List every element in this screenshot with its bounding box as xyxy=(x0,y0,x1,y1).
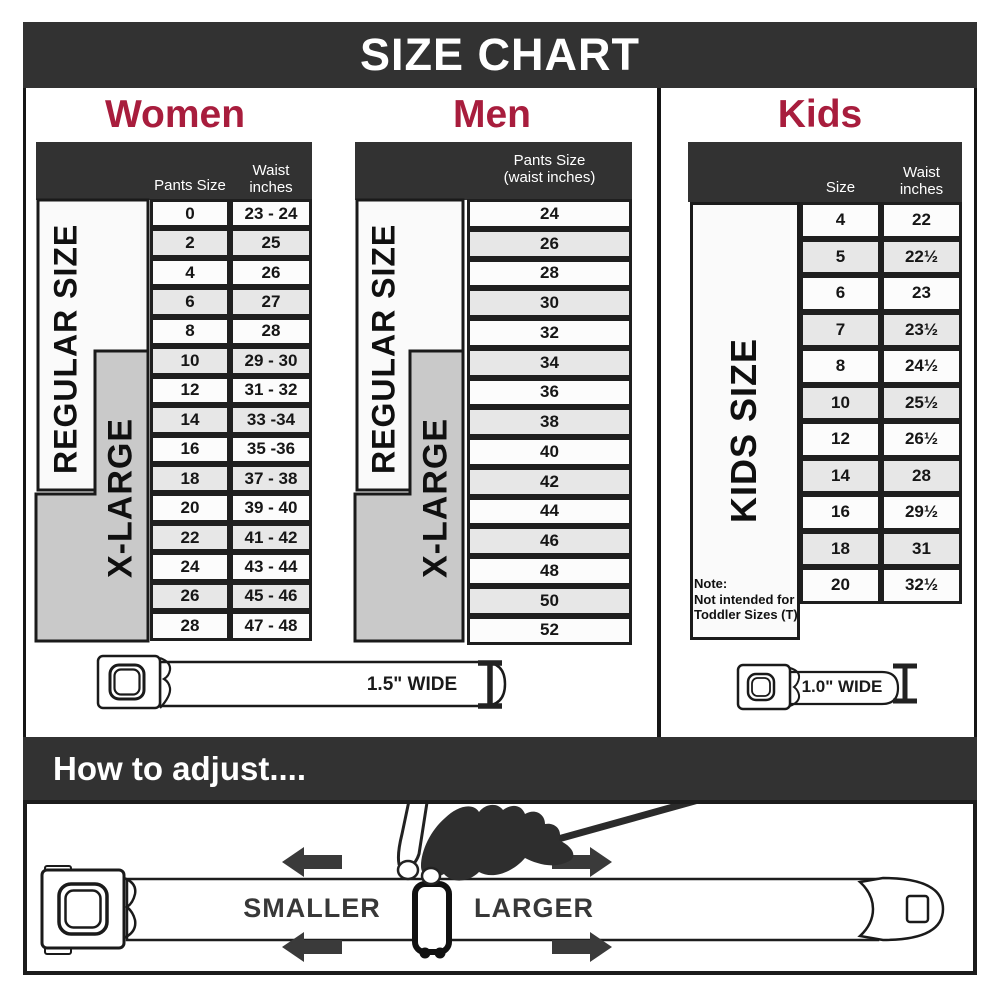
seatbelt-buckle-icon xyxy=(98,656,170,708)
table-cell: 32 xyxy=(467,318,632,348)
table-cell: 23 - 24 xyxy=(230,199,312,228)
women-size-table: 023 - 242254266278281029 - 301231 - 3214… xyxy=(150,199,312,641)
table-cell: 0 xyxy=(150,199,230,228)
table-cell: 52 xyxy=(467,616,632,646)
table-cell: 14 xyxy=(800,458,881,495)
men-size-table: 242628303234363840424446485052 xyxy=(467,199,632,645)
hand-icon xyxy=(398,804,573,884)
table-cell: 39 - 40 xyxy=(230,493,312,522)
table-cell: 29½ xyxy=(881,494,962,531)
belt-tongue-icon xyxy=(860,878,943,940)
kids-size-label: KIDS SIZE xyxy=(722,290,766,570)
table-cell: 31 xyxy=(881,531,962,568)
table-cell: 42 xyxy=(467,467,632,497)
kids-heading: Kids xyxy=(735,94,905,136)
men-xlarge-label: X-LARGE xyxy=(414,362,458,634)
table-cell: 43 - 44 xyxy=(230,552,312,581)
table-cell: 26 xyxy=(230,258,312,287)
table-cell: 30 xyxy=(467,288,632,318)
table-cell: 5 xyxy=(800,239,881,276)
table-cell: 25½ xyxy=(881,385,962,422)
table-cell: 27 xyxy=(230,287,312,316)
women-heading: Women xyxy=(90,94,260,136)
table-cell: 4 xyxy=(800,202,881,239)
table-cell: 23 xyxy=(881,275,962,312)
frame-right-border xyxy=(974,88,977,737)
seatbelt-buckle-icon xyxy=(42,866,135,954)
women-column-header-bar: Pants Size Waist inches xyxy=(36,142,312,200)
adult-belt-width-label: 1.5" WIDE xyxy=(352,674,472,696)
table-cell: 23½ xyxy=(881,312,962,349)
table-cell: 37 - 38 xyxy=(230,464,312,493)
table-cell: 22½ xyxy=(881,239,962,276)
table-cell: 12 xyxy=(800,421,881,458)
table-cell: 6 xyxy=(150,287,230,316)
table-cell: 24 xyxy=(467,199,632,229)
table-cell: 44 xyxy=(467,497,632,527)
smaller-label: SMALLER xyxy=(237,893,387,924)
table-cell: 16 xyxy=(150,435,230,464)
table-cell: 34 xyxy=(467,348,632,378)
table-cell: 33 -34 xyxy=(230,405,312,434)
men-regular-size-label: REGULAR SIZE xyxy=(362,206,406,492)
kids-size-header: Size xyxy=(800,179,881,196)
kids-note: Note: Not intended for Toddler Sizes (T) xyxy=(694,576,800,623)
table-cell: 2 xyxy=(150,228,230,257)
men-heading: Men xyxy=(407,94,577,136)
table-cell: 25 xyxy=(230,228,312,257)
page-title: SIZE CHART xyxy=(360,29,640,81)
frame-left-border xyxy=(23,88,26,737)
table-cell: 24 xyxy=(150,552,230,581)
women-xlarge-label: X-LARGE xyxy=(99,362,143,634)
table-cell: 28 xyxy=(881,458,962,495)
kids-waist-header: Waist inches xyxy=(881,164,962,199)
adjust-illustration xyxy=(27,804,973,971)
section-divider xyxy=(657,88,661,737)
women-pants-size-header: Pants Size xyxy=(150,177,230,194)
table-cell: 36 xyxy=(467,378,632,408)
table-cell: 7 xyxy=(800,312,881,349)
table-cell: 40 xyxy=(467,437,632,467)
arrow-left-icon xyxy=(282,847,342,877)
table-cell: 18 xyxy=(150,464,230,493)
table-cell: 20 xyxy=(150,493,230,522)
table-cell: 8 xyxy=(150,317,230,346)
size-chart-page: SIZE CHART Women Men Kids Pants Size Wai… xyxy=(0,0,1000,1000)
table-cell: 41 - 42 xyxy=(230,523,312,552)
table-cell: 12 xyxy=(150,376,230,405)
kids-column-header-bar: Size Waist inches xyxy=(688,142,962,202)
table-cell: 45 - 46 xyxy=(230,582,312,611)
table-cell: 31 - 32 xyxy=(230,376,312,405)
table-cell: 4 xyxy=(150,258,230,287)
table-cell: 48 xyxy=(467,556,632,586)
table-cell: 50 xyxy=(467,586,632,616)
table-cell: 28 xyxy=(150,611,230,640)
women-regular-size-label: REGULAR SIZE xyxy=(44,206,88,492)
table-cell: 22 xyxy=(881,202,962,239)
table-cell: 28 xyxy=(230,317,312,346)
men-column-header-bar: Pants Size (waist inches) xyxy=(355,142,632,200)
table-cell: 32½ xyxy=(881,567,962,604)
women-waist-header: Waist inches xyxy=(230,162,312,197)
kids-size-table: 422522½623723½824½1025½1226½14281629½183… xyxy=(800,202,962,604)
table-cell: 47 - 48 xyxy=(230,611,312,640)
table-cell: 20 xyxy=(800,567,881,604)
table-cell: 10 xyxy=(800,385,881,422)
table-cell: 8 xyxy=(800,348,881,385)
how-to-adjust-bar: How to adjust.... xyxy=(23,737,977,800)
table-cell: 16 xyxy=(800,494,881,531)
table-cell: 14 xyxy=(150,405,230,434)
table-cell: 28 xyxy=(467,259,632,289)
table-cell: 22 xyxy=(150,523,230,552)
table-cell: 24½ xyxy=(881,348,962,385)
table-cell: 29 - 30 xyxy=(230,346,312,375)
table-cell: 35 -36 xyxy=(230,435,312,464)
table-cell: 26½ xyxy=(881,421,962,458)
how-to-adjust-title: How to adjust.... xyxy=(23,750,306,788)
table-cell: 18 xyxy=(800,531,881,568)
table-cell: 38 xyxy=(467,407,632,437)
table-cell: 26 xyxy=(467,229,632,259)
kids-belt-width-label: 1.0" WIDE xyxy=(792,677,892,697)
table-cell: 6 xyxy=(800,275,881,312)
larger-label: LARGER xyxy=(459,893,609,924)
seatbelt-buckle-icon xyxy=(738,665,799,709)
table-cell: 26 xyxy=(150,582,230,611)
title-bar: SIZE CHART xyxy=(23,22,977,88)
table-cell: 46 xyxy=(467,526,632,556)
belt-slider-icon xyxy=(415,884,449,959)
table-cell: 10 xyxy=(150,346,230,375)
men-pants-size-header: Pants Size (waist inches) xyxy=(467,152,632,187)
